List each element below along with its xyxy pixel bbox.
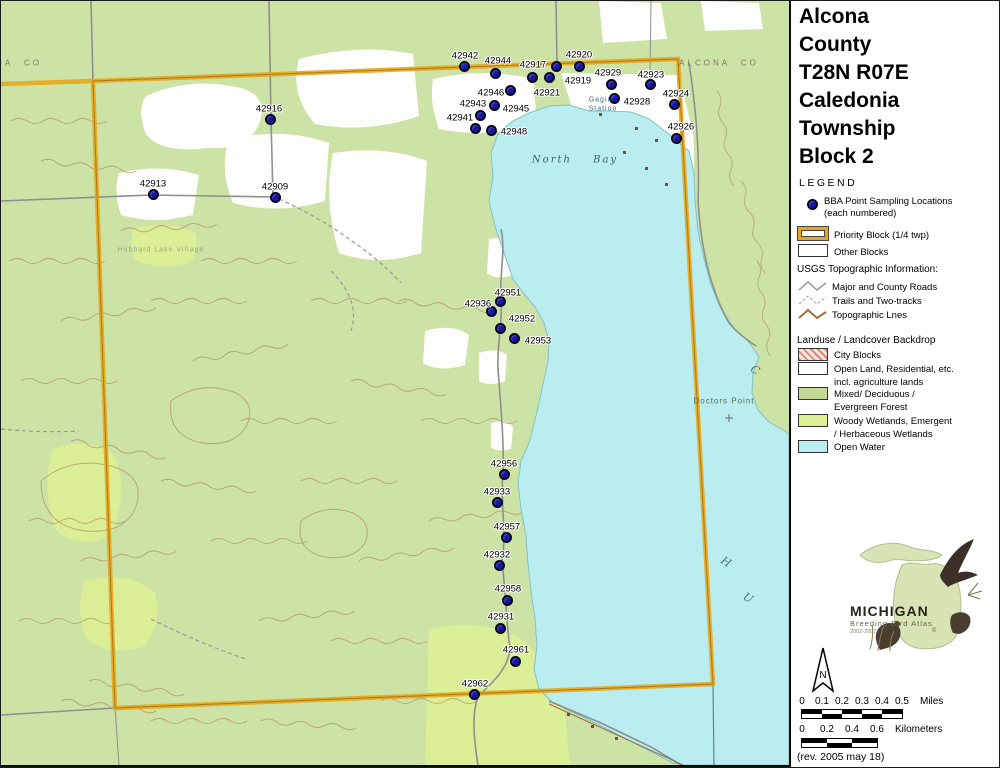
- miles-tick: 0.2: [835, 696, 849, 707]
- atlas-map-page: North BayGagingStationALCONA CONA CODoct…: [0, 0, 1000, 768]
- landuse-open-label: Open Land, Residential, etc.: [834, 364, 954, 375]
- km-tick: 0.6: [870, 724, 884, 735]
- north-arrow: N: [810, 645, 836, 699]
- revision-note: (rev. 2005 may 18): [797, 751, 884, 763]
- landuse-wetland-label2: / Herbaceous Wetlands: [834, 429, 933, 440]
- usgs-roads-label: Major and County Roads: [832, 282, 937, 293]
- usgs-trails-label: Trails and Two-tracks: [832, 296, 922, 307]
- miles-tick: 0.3: [855, 696, 869, 707]
- landuse-forest-label2: Evergreen Forest: [834, 402, 907, 413]
- map-title: Alcona County T28N R07E Caledonia Townsh…: [799, 3, 909, 171]
- logo-subtitle: Breeding Bird Atlas: [850, 619, 933, 628]
- topo-map-graphic: [1, 1, 789, 765]
- logo-art: [840, 533, 998, 655]
- miles-scale-bar: [801, 709, 903, 719]
- legend-point-label-line2: (each numbered): [824, 208, 952, 220]
- km-scale-bar: [801, 738, 878, 748]
- major-roads-icon: [797, 279, 829, 293]
- legend-priority-label: Priority Block (1/4 twp): [834, 230, 929, 241]
- landuse-water-swatch: [798, 440, 828, 453]
- title-line: Caledonia: [799, 87, 909, 115]
- logo-years: 2002-2007: [850, 629, 876, 635]
- legend-point-icon: [807, 199, 818, 210]
- legend-other-swatch: [798, 244, 828, 257]
- legend-point-label-line1: BBA Point Sampling Locations: [824, 196, 952, 208]
- title-line: Block 2: [799, 143, 909, 171]
- legend-heading: LEGEND: [799, 177, 857, 189]
- km-unit: Kilometers: [895, 724, 942, 735]
- landuse-wetland-label: Woody Wetlands, Emergent: [834, 416, 952, 427]
- landuse-forest-swatch: [798, 387, 828, 400]
- legend-other-label: Other Blocks: [834, 247, 888, 258]
- topo-lines-icon: [797, 307, 829, 321]
- landuse-open-swatch: [798, 362, 828, 375]
- miles-tick: 0.5: [895, 696, 909, 707]
- landuse-forest-label: Mixed/ Deciduous /: [834, 389, 915, 400]
- title-line: T28N R07E: [799, 59, 909, 87]
- km-tick: 0: [799, 724, 805, 735]
- landuse-wetland-swatch: [798, 414, 828, 427]
- legend-sidebar: Alcona County T28N R07E Caledonia Townsh…: [792, 1, 1000, 767]
- legend-priority-swatch: [798, 227, 828, 240]
- miles-tick: 0: [799, 696, 805, 707]
- miles-tick: 0.1: [815, 696, 829, 707]
- north-arrow-n: N: [819, 670, 826, 681]
- title-line: County: [799, 31, 909, 59]
- legend-point-label: BBA Point Sampling Locations (each numbe…: [824, 196, 952, 219]
- km-tick: 0.2: [820, 724, 834, 735]
- map-canvas[interactable]: North BayGagingStationALCONA CONA CODoct…: [1, 1, 791, 767]
- trails-icon: [797, 293, 829, 307]
- miles-tick: 0.4: [875, 696, 889, 707]
- miles-unit: Miles: [920, 696, 943, 707]
- landuse-city-swatch: [798, 348, 828, 361]
- usgs-topo-label: Topographic Lnes: [832, 310, 907, 321]
- usgs-heading: USGS Topographic Information:: [797, 264, 938, 275]
- title-line: Alcona: [799, 3, 909, 31]
- michigan-bba-logo: MICHIGAN Breeding Bird Atlas 2002-2007 I…: [840, 533, 998, 655]
- km-tick: 0.4: [845, 724, 859, 735]
- logo-numeral: II: [932, 627, 936, 634]
- landuse-open-label2: incl. agriculture lands: [834, 377, 923, 388]
- landuse-water-label: Open Water: [834, 442, 885, 453]
- landuse-city-label: City Blocks: [834, 350, 881, 361]
- title-line: Township: [799, 115, 909, 143]
- logo-name: MICHIGAN: [850, 603, 929, 619]
- landuse-heading: Landuse / Landcover Backdrop: [797, 335, 935, 346]
